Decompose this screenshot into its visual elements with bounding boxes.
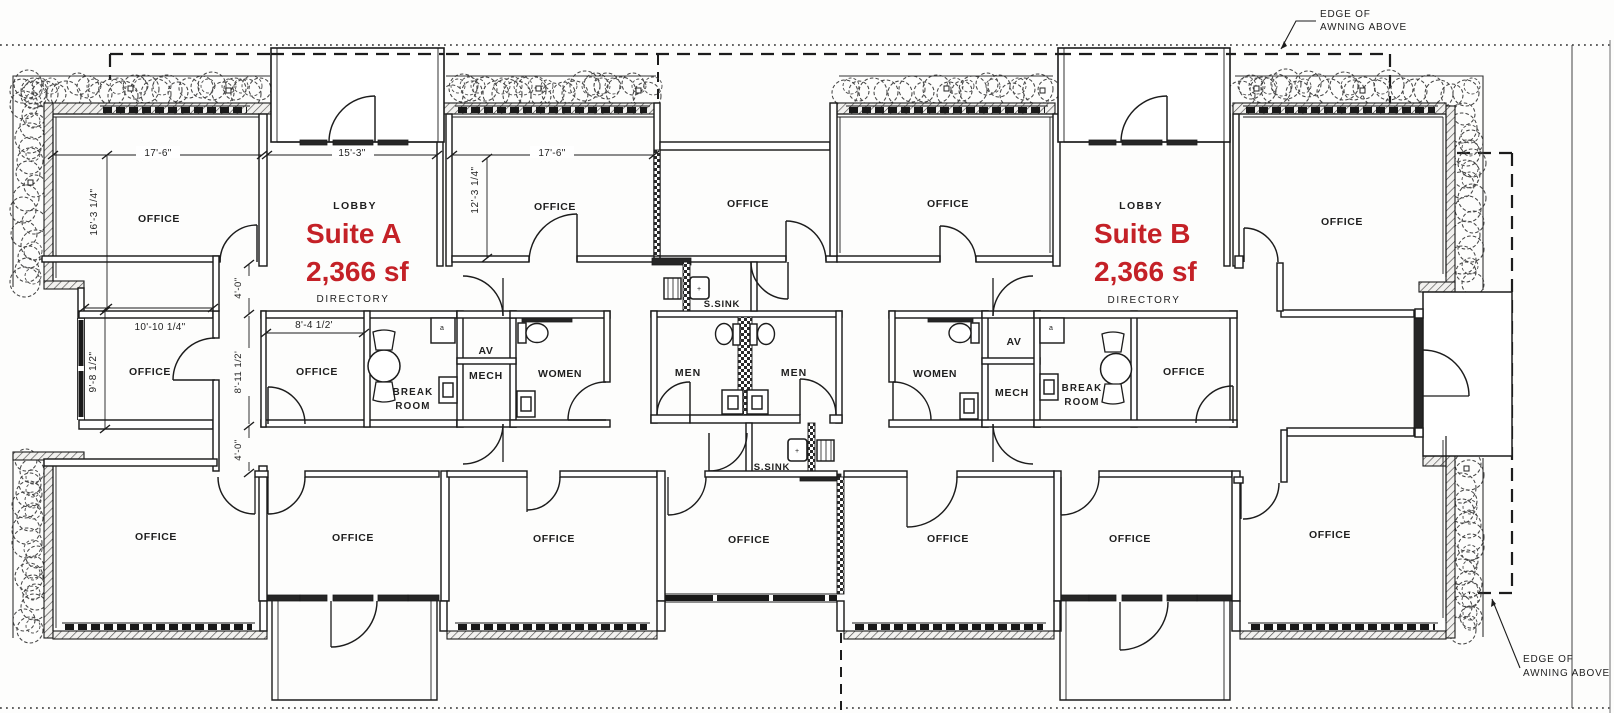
svg-text:AWNING ABOVE: AWNING ABOVE xyxy=(1523,668,1610,679)
svg-text:BREAK: BREAK xyxy=(393,387,434,398)
svg-text:OFFICE: OFFICE xyxy=(332,532,374,544)
svg-text:MECH: MECH xyxy=(995,387,1029,399)
svg-text:+: + xyxy=(697,286,701,293)
svg-text:OFFICE: OFFICE xyxy=(728,534,770,546)
svg-text:WOMEN: WOMEN xyxy=(538,368,582,380)
svg-text:AWNING ABOVE: AWNING ABOVE xyxy=(1320,22,1407,33)
svg-text:EDGE OF: EDGE OF xyxy=(1320,9,1371,20)
svg-text:16'-3 1/4": 16'-3 1/4" xyxy=(89,188,100,235)
svg-text:17'-6": 17'-6" xyxy=(538,148,565,159)
svg-text:a: a xyxy=(1049,325,1053,332)
svg-text:Suite B: Suite B xyxy=(1094,218,1190,249)
svg-text:MEN: MEN xyxy=(781,367,807,379)
svg-text:OFFICE: OFFICE xyxy=(1109,533,1151,545)
svg-text:4'-0": 4'-0" xyxy=(233,439,244,460)
svg-text:OFFICE: OFFICE xyxy=(1309,529,1351,541)
svg-text:a: a xyxy=(440,325,444,332)
svg-text:12'-3 1/4": 12'-3 1/4" xyxy=(470,166,481,213)
svg-text:AV: AV xyxy=(1006,336,1021,348)
svg-text:DIRECTORY: DIRECTORY xyxy=(1108,295,1181,306)
svg-text:+: + xyxy=(795,448,799,455)
svg-text:BREAK: BREAK xyxy=(1062,383,1103,394)
svg-text:ROOM: ROOM xyxy=(395,401,430,412)
svg-text:4'-0": 4'-0" xyxy=(233,277,244,298)
svg-text:9'-8 1/2": 9'-8 1/2" xyxy=(88,351,99,392)
svg-text:WOMEN: WOMEN xyxy=(913,368,957,380)
svg-text:OFFICE: OFFICE xyxy=(1321,216,1363,228)
svg-text:LOBBY: LOBBY xyxy=(1119,200,1163,212)
svg-text:OFFICE: OFFICE xyxy=(533,533,575,545)
svg-text:2,366 sf: 2,366 sf xyxy=(306,256,409,287)
svg-text:10'-10 1/4": 10'-10 1/4" xyxy=(134,322,185,333)
svg-text:OFFICE: OFFICE xyxy=(727,198,769,210)
svg-text:8'-11 1/2': 8'-11 1/2' xyxy=(233,351,244,394)
svg-text:17'-6": 17'-6" xyxy=(144,148,171,159)
svg-text:LOBBY: LOBBY xyxy=(333,200,377,212)
svg-text:OFFICE: OFFICE xyxy=(138,213,180,225)
svg-text:MEN: MEN xyxy=(675,367,701,379)
svg-text:DIRECTORY: DIRECTORY xyxy=(317,294,390,305)
svg-text:ROOM: ROOM xyxy=(1064,397,1099,408)
svg-text:OFFICE: OFFICE xyxy=(927,533,969,545)
svg-text:OFFICE: OFFICE xyxy=(135,531,177,543)
svg-text:OFFICE: OFFICE xyxy=(927,198,969,210)
svg-text:2,366 sf: 2,366 sf xyxy=(1094,256,1197,287)
svg-text:OFFICE: OFFICE xyxy=(129,366,171,378)
svg-text:8'-4 1/2': 8'-4 1/2' xyxy=(295,320,333,331)
svg-text:15'-3": 15'-3" xyxy=(338,148,365,159)
svg-text:AV: AV xyxy=(478,345,493,357)
svg-text:OFFICE: OFFICE xyxy=(534,201,576,213)
svg-text:OFFICE: OFFICE xyxy=(1163,366,1205,378)
svg-text:Suite A: Suite A xyxy=(306,218,401,249)
svg-text:OFFICE: OFFICE xyxy=(296,366,338,378)
svg-text:MECH: MECH xyxy=(469,370,503,382)
svg-text:EDGE OF: EDGE OF xyxy=(1523,654,1574,665)
svg-text:S.SINK: S.SINK xyxy=(704,299,740,310)
